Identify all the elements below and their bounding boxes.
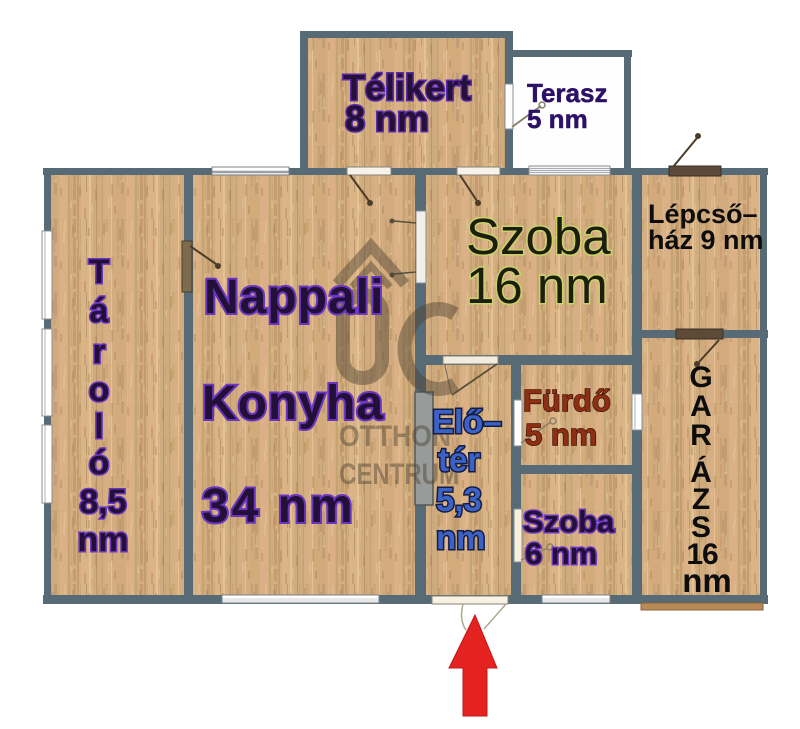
svg-text:Szoba: Szoba xyxy=(523,504,615,539)
svg-text:ház 9 nm: ház 9 nm xyxy=(648,225,764,255)
svg-text:ó: ó xyxy=(89,444,110,482)
svg-text:16 nm: 16 nm xyxy=(466,257,608,314)
svg-text:34 nm: 34 nm xyxy=(202,480,356,533)
svg-text:nm: nm xyxy=(682,562,732,599)
svg-text:nm: nm xyxy=(78,521,129,559)
svg-text:r: r xyxy=(92,333,105,371)
svg-text:T: T xyxy=(89,253,110,291)
svg-text:5 nm: 5 nm xyxy=(525,417,597,452)
svg-text:6 nm: 6 nm xyxy=(525,536,597,571)
svg-text:Nappali: Nappali xyxy=(204,271,384,324)
svg-text:R: R xyxy=(690,419,712,452)
svg-text:l: l xyxy=(94,408,103,446)
svg-text:5 nm: 5 nm xyxy=(527,104,588,134)
svg-text:tér: tér xyxy=(438,441,480,478)
svg-text:8,5: 8,5 xyxy=(79,483,126,521)
svg-text:á: á xyxy=(90,292,109,330)
svg-text:Konyha: Konyha xyxy=(202,377,384,430)
svg-text:Elő–: Elő– xyxy=(432,403,502,440)
svg-text:nm: nm xyxy=(436,519,486,556)
svg-text:5,3: 5,3 xyxy=(436,481,482,518)
svg-text:o: o xyxy=(89,371,110,409)
svg-text:8 nm: 8 nm xyxy=(345,98,429,139)
svg-text:Fürdő: Fürdő xyxy=(523,383,611,418)
